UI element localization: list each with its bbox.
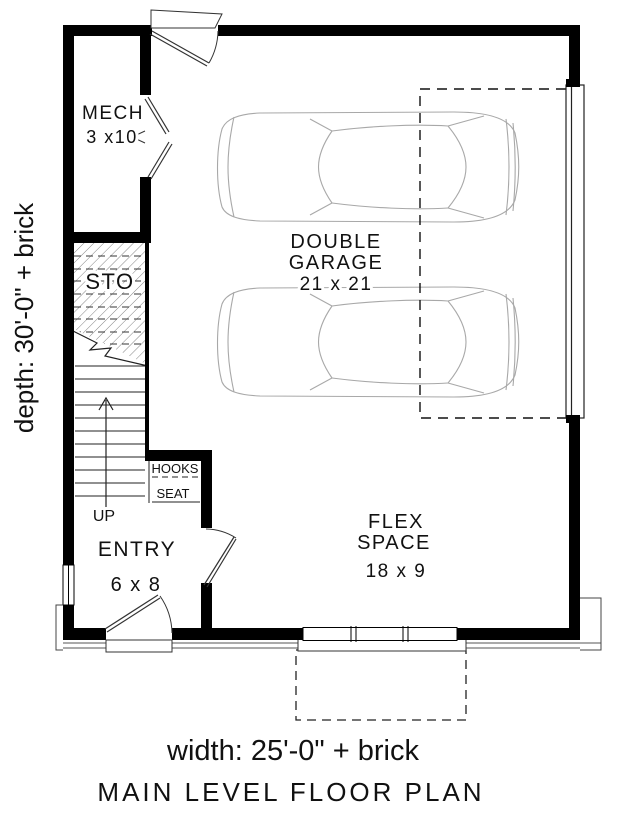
up-label: UP bbox=[93, 508, 115, 525]
garage-door-panel bbox=[566, 79, 584, 423]
stairs bbox=[75, 366, 145, 496]
sto-label: STO bbox=[85, 269, 134, 294]
storage-hatch bbox=[74, 243, 148, 365]
flex-label-line1: FLEX bbox=[368, 511, 424, 533]
car-top-view-1 bbox=[218, 112, 519, 222]
entry-interior-door bbox=[204, 529, 236, 587]
seat-label: SEAT bbox=[157, 486, 190, 501]
front-stoop-dashed-outline bbox=[296, 650, 466, 720]
flex-dims: 18 x 9 bbox=[366, 561, 427, 582]
mech-label: MECH bbox=[82, 103, 144, 124]
hooks-label: HOOKS bbox=[152, 461, 199, 476]
car-top-view-2 bbox=[218, 287, 519, 397]
side-window bbox=[63, 565, 74, 605]
rear-door bbox=[150, 10, 222, 66]
entry-label: ENTRY bbox=[98, 538, 176, 561]
flex-label-line2: SPACE bbox=[357, 532, 431, 554]
garage-label-line1: DOUBLE bbox=[290, 231, 381, 253]
overhead-door-dashed-outline bbox=[420, 89, 567, 418]
front-door bbox=[105, 595, 172, 652]
width-dimension-label: width: 25'-0" + brick bbox=[166, 735, 419, 767]
floor-plan-page: MECH 3 x10 STO DOUBLE GARAGE 21 x 21 FLE… bbox=[0, 0, 619, 836]
mech-dims: 3 x10 bbox=[86, 127, 138, 147]
garage-dims: 21 x 21 bbox=[300, 274, 373, 295]
plan-title: MAIN LEVEL FLOOR PLAN bbox=[97, 777, 484, 807]
floor-plan-drawing: MECH 3 x10 STO DOUBLE GARAGE 21 x 21 FLE… bbox=[0, 0, 619, 836]
depth-dimension-label: depth: 30'-0" + brick bbox=[9, 202, 39, 433]
stair-direction-arrow bbox=[99, 398, 113, 512]
entry-dims: 6 x 8 bbox=[111, 574, 162, 596]
garage-label-line2: GARAGE bbox=[289, 252, 384, 274]
front-window-band bbox=[303, 626, 457, 642]
